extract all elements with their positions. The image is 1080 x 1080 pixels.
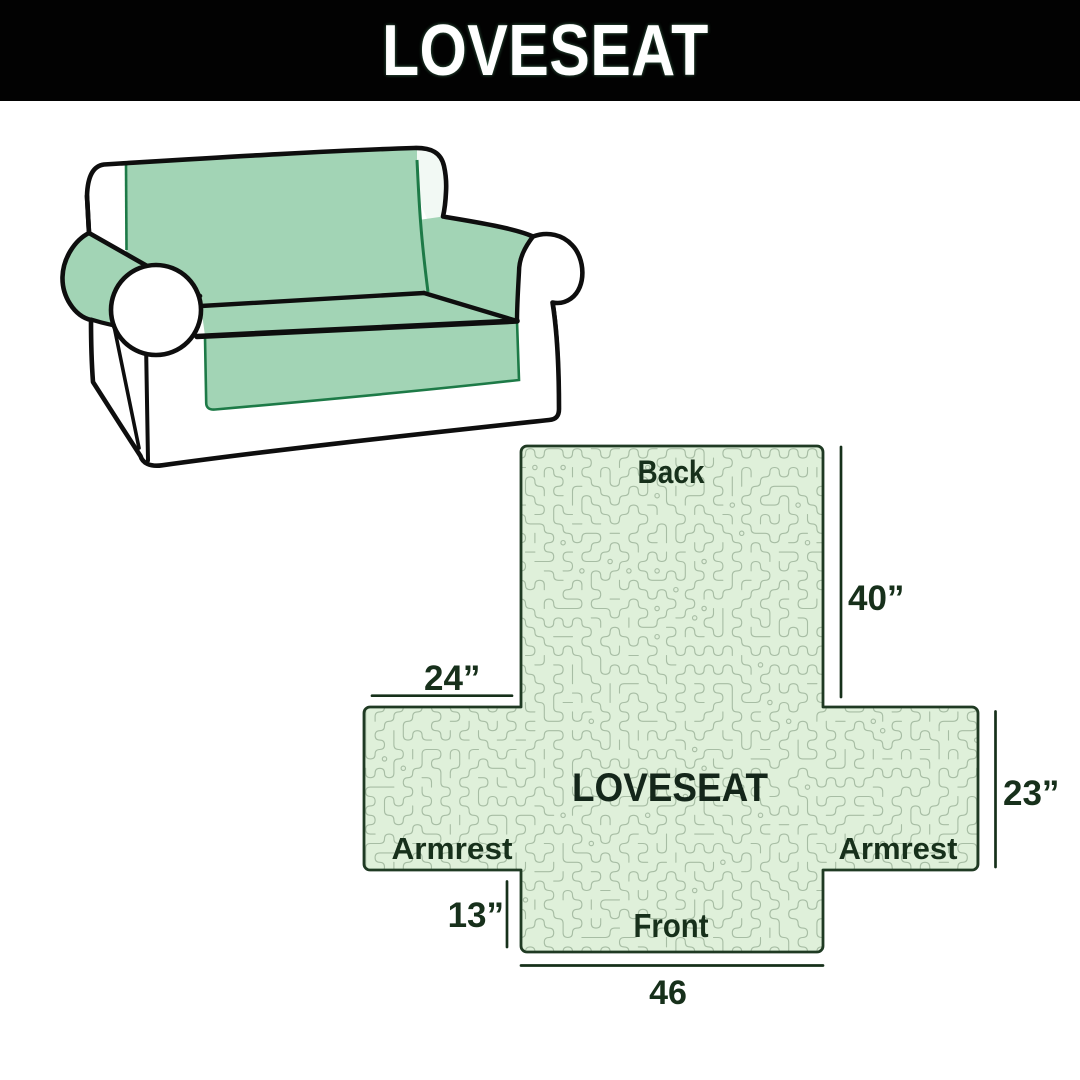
- svg-text:13”: 13”: [448, 896, 504, 935]
- svg-text:Armrest: Armrest: [839, 831, 958, 866]
- svg-text:46: 46: [649, 974, 687, 1012]
- svg-text:Back: Back: [638, 454, 705, 490]
- svg-text:Armrest: Armrest: [392, 831, 513, 866]
- svg-text:LOVESEAT: LOVESEAT: [572, 766, 768, 810]
- svg-text:40”: 40”: [848, 579, 904, 618]
- svg-text:24”: 24”: [424, 659, 480, 698]
- svg-text:23”: 23”: [1003, 774, 1059, 813]
- svg-text:Front: Front: [634, 907, 709, 944]
